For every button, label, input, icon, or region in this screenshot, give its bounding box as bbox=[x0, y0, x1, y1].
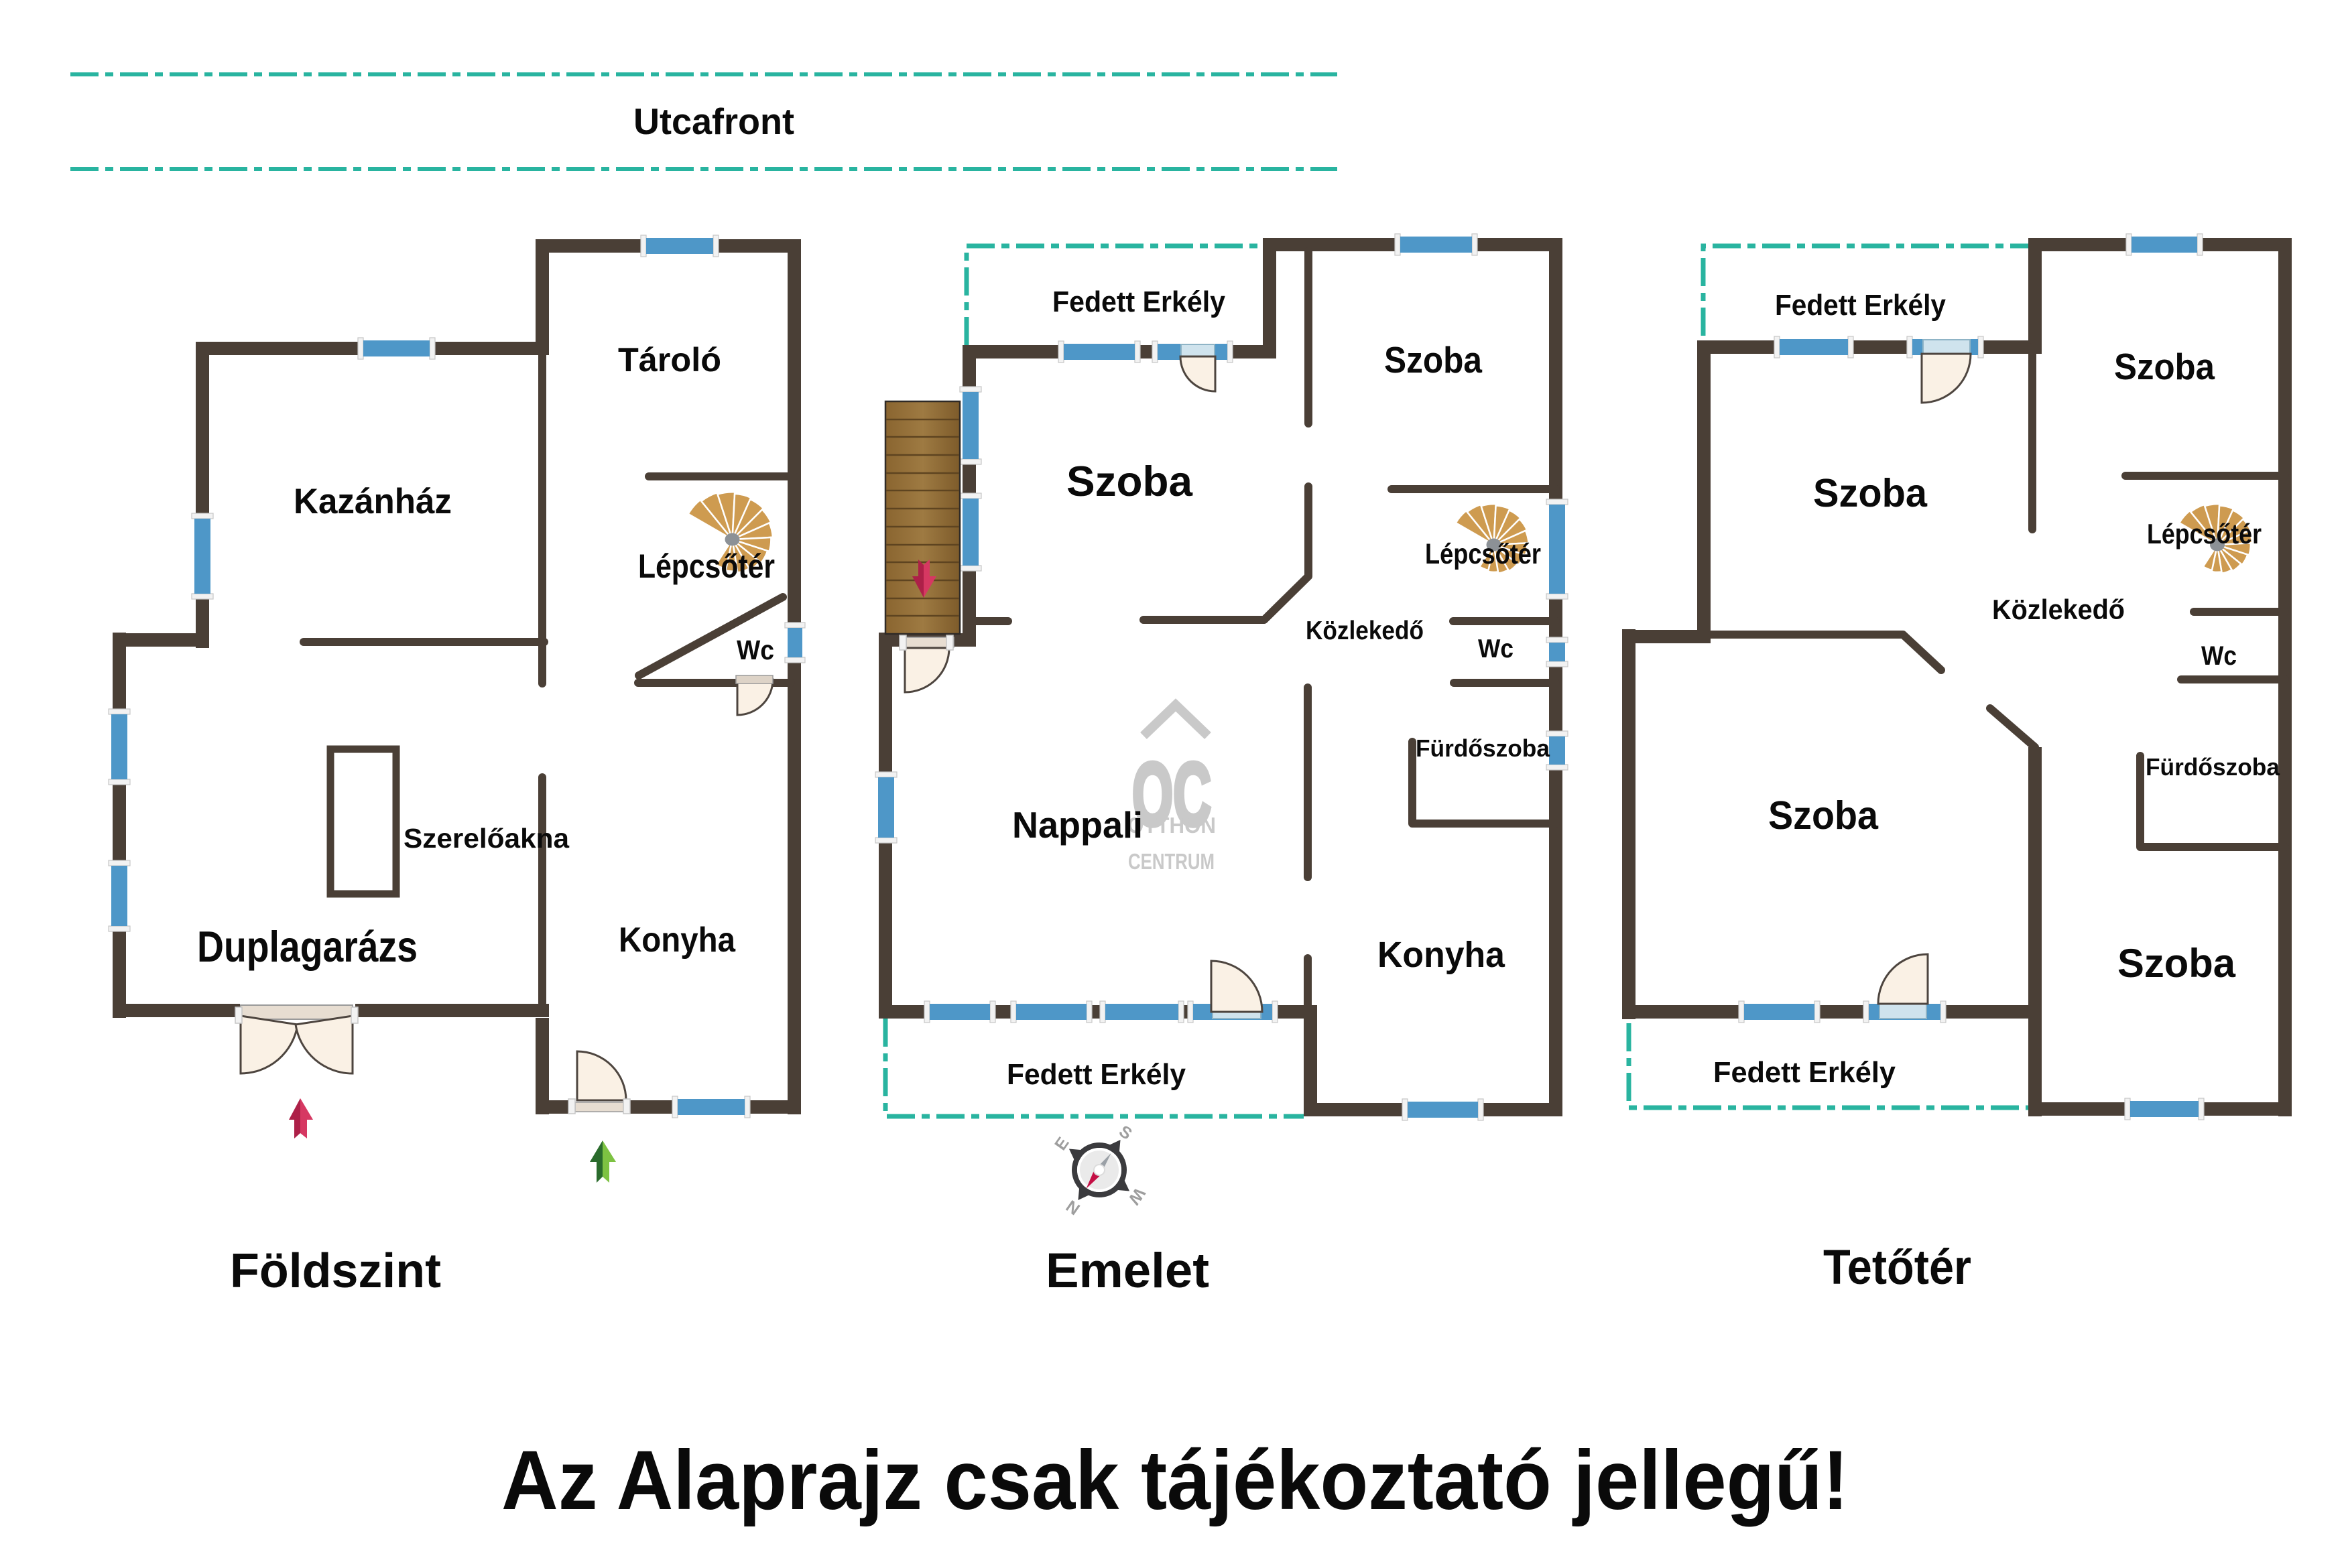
svg-text:Tetőtér: Tetőtér bbox=[1823, 1240, 1971, 1295]
svg-text:Szoba: Szoba bbox=[2117, 941, 2236, 986]
svg-text:Wc: Wc bbox=[2201, 641, 2237, 671]
svg-text:Wc: Wc bbox=[737, 635, 774, 665]
svg-text:Utcafront: Utcafront bbox=[633, 101, 794, 142]
svg-text:Szoba: Szoba bbox=[2114, 346, 2215, 387]
svg-text:Duplagarázs: Duplagarázs bbox=[197, 922, 418, 971]
svg-text:Emelet: Emelet bbox=[1046, 1244, 1209, 1298]
svg-text:Az Alaprajz csak tájékoztató j: Az Alaprajz csak tájékoztató jellegű! bbox=[501, 1434, 1849, 1527]
svg-text:Szerelőakna: Szerelőakna bbox=[404, 823, 570, 854]
svg-text:Közlekedő: Közlekedő bbox=[1992, 594, 2125, 625]
svg-text:CENTRUM: CENTRUM bbox=[1128, 849, 1215, 874]
svg-text:Szoba: Szoba bbox=[1813, 471, 1928, 515]
svg-text:Lépcsőtér: Lépcsőtér bbox=[2147, 518, 2262, 549]
svg-text:Lépcsőtér: Lépcsőtér bbox=[638, 547, 775, 585]
svg-text:Közlekedő: Közlekedő bbox=[1306, 616, 1424, 645]
svg-text:Tároló: Tároló bbox=[618, 341, 721, 379]
svg-text:Nappali: Nappali bbox=[1012, 804, 1143, 846]
svg-text:Fürdőszoba: Fürdőszoba bbox=[1416, 734, 1550, 762]
svg-text:Szoba: Szoba bbox=[1066, 458, 1193, 505]
svg-text:Földszint: Földszint bbox=[230, 1244, 441, 1298]
svg-text:Kazánház: Kazánház bbox=[294, 482, 452, 521]
svg-text:Wc: Wc bbox=[1478, 635, 1514, 663]
svg-text:Konyha: Konyha bbox=[619, 921, 736, 960]
svg-text:Fedett Erkély: Fedett Erkély bbox=[1775, 289, 1946, 322]
svg-text:Szoba: Szoba bbox=[1384, 339, 1482, 381]
svg-text:Lépcsőtér: Lépcsőtér bbox=[1425, 538, 1541, 570]
svg-text:Konyha: Konyha bbox=[1377, 935, 1505, 975]
svg-text:Fedett Erkély: Fedett Erkély bbox=[1052, 285, 1225, 318]
svg-text:Fürdőszoba: Fürdőszoba bbox=[2146, 753, 2280, 781]
svg-text:Fedett Erkély: Fedett Erkély bbox=[1007, 1058, 1186, 1091]
svg-text:Szoba: Szoba bbox=[1768, 793, 1879, 838]
svg-text:Fedett Erkély: Fedett Erkély bbox=[1713, 1056, 1896, 1089]
